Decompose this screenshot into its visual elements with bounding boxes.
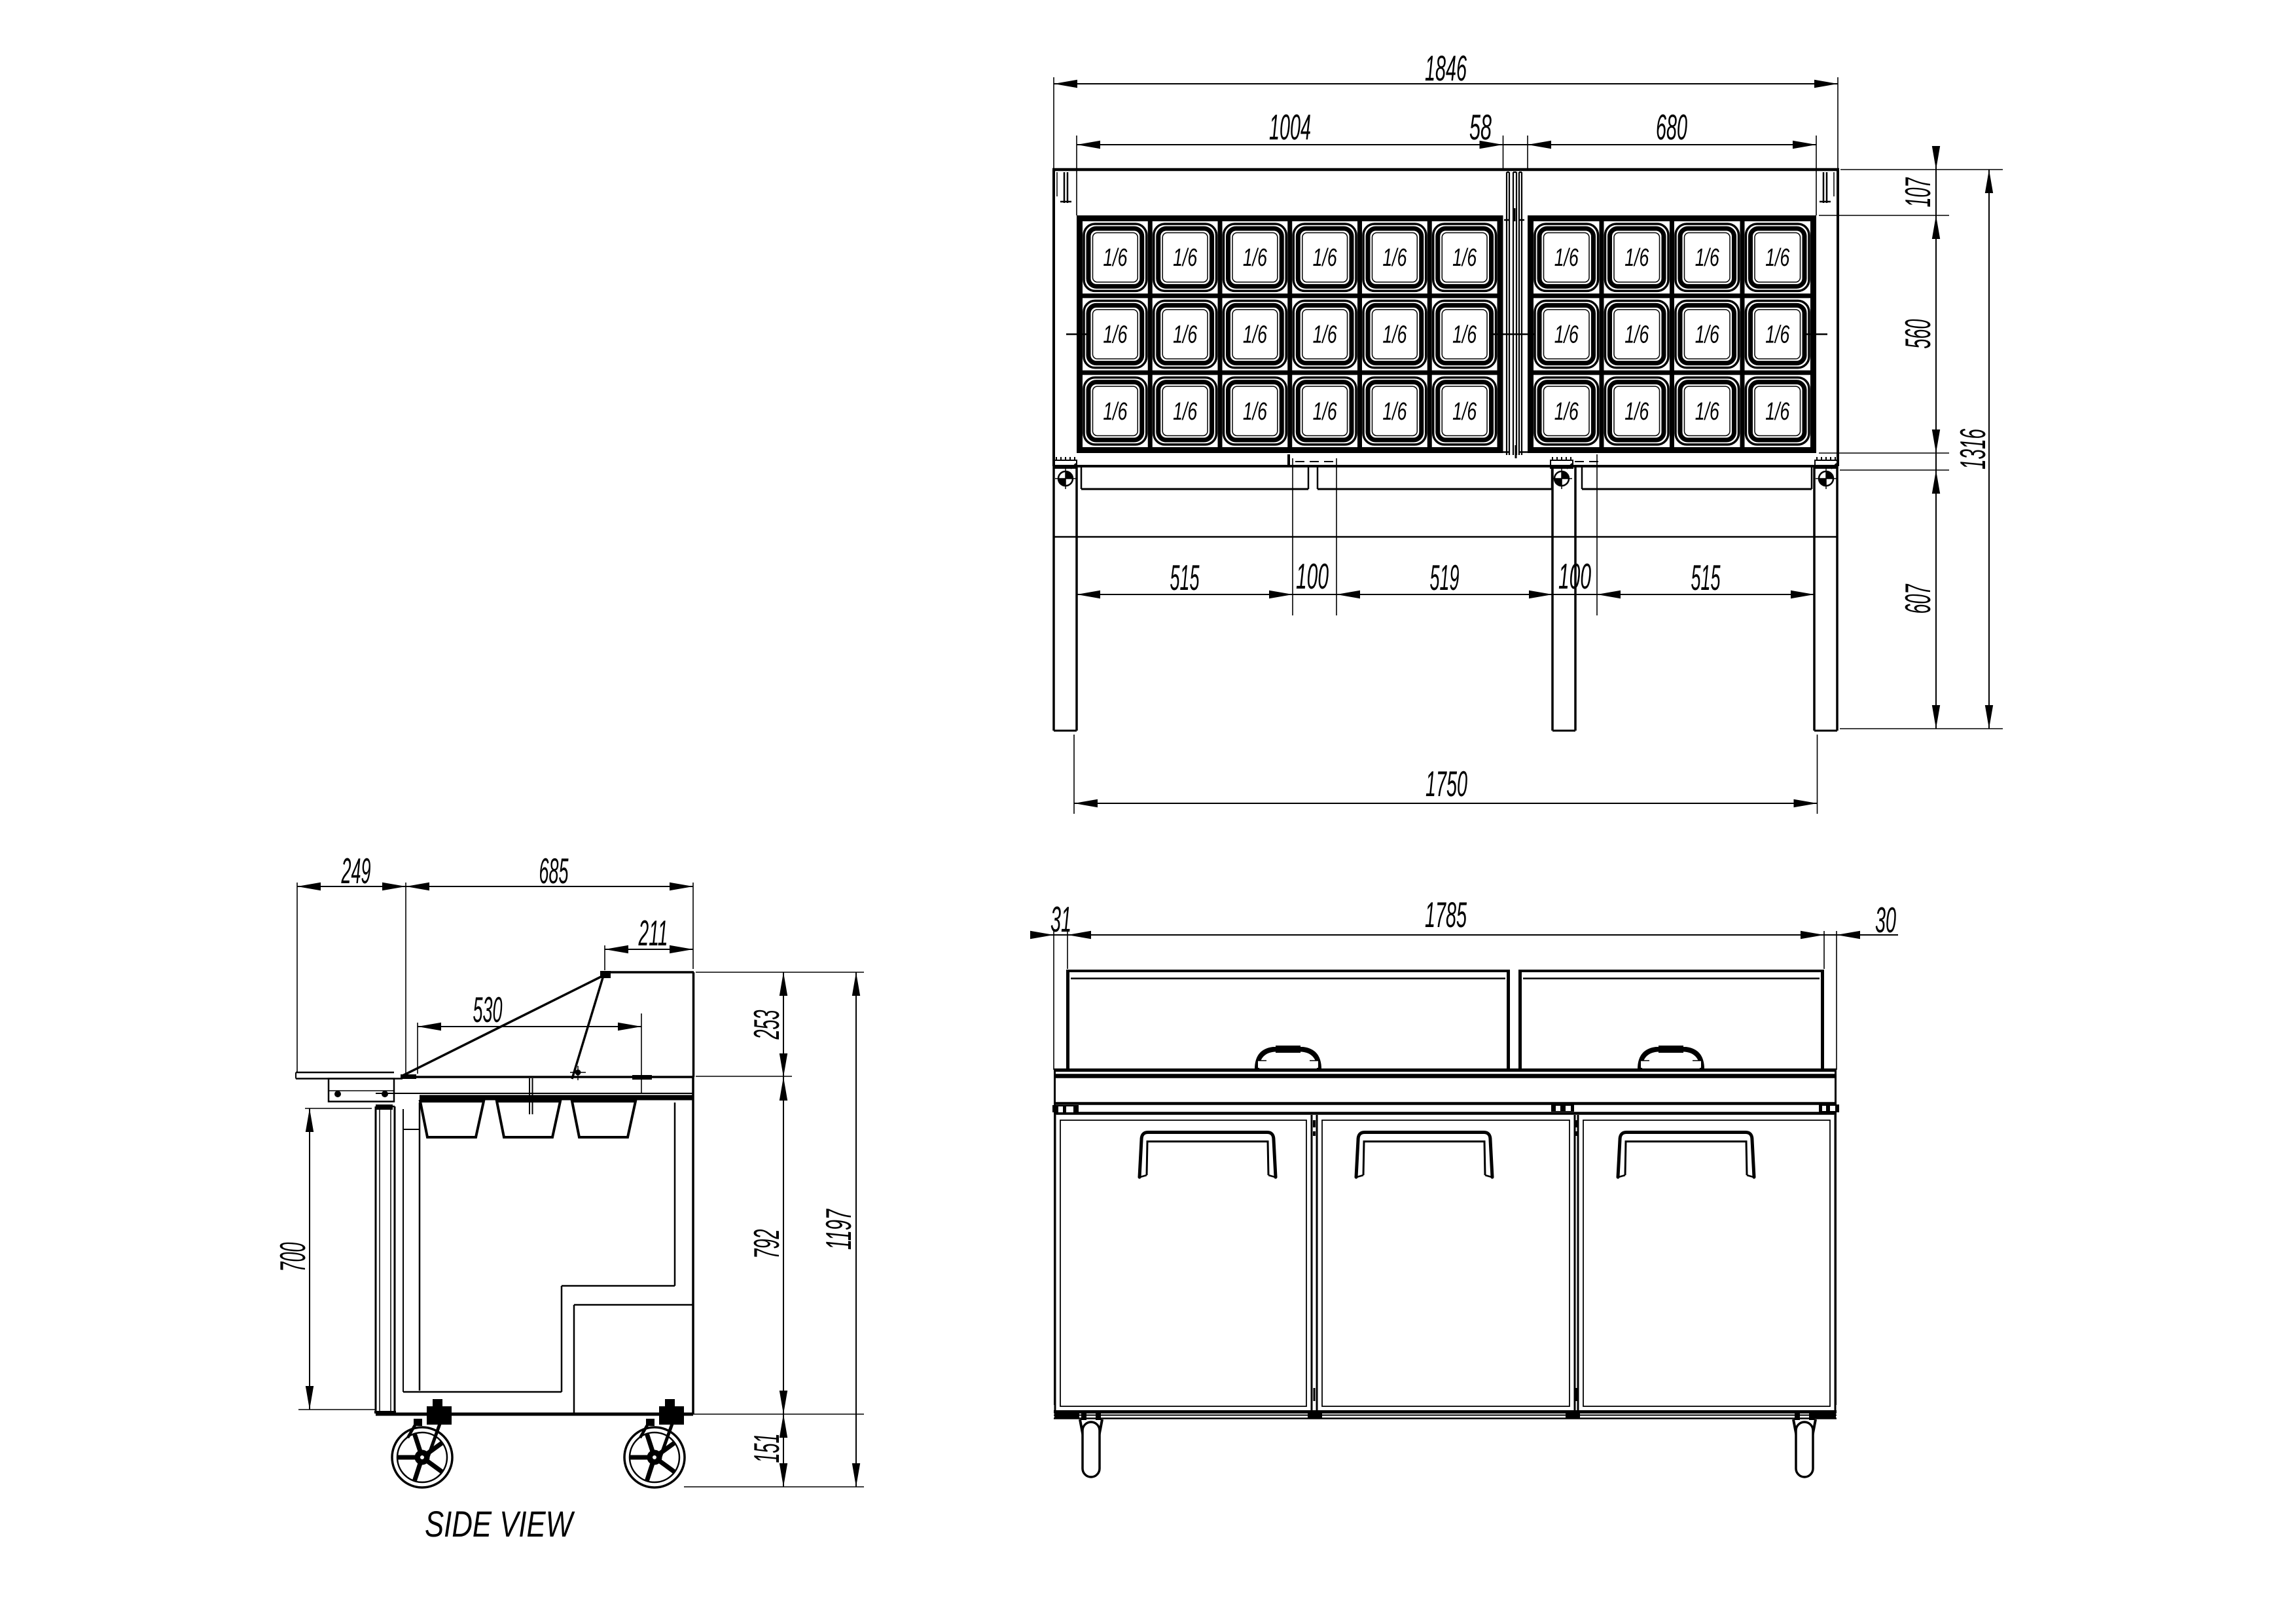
svg-text:1/6: 1/6 xyxy=(1243,321,1268,349)
svg-text:1/6: 1/6 xyxy=(1313,321,1338,349)
svg-text:1/6: 1/6 xyxy=(1554,398,1579,426)
svg-text:1/6: 1/6 xyxy=(1452,244,1477,272)
svg-text:1/6: 1/6 xyxy=(1624,398,1649,426)
svg-text:607: 607 xyxy=(1897,583,1938,613)
svg-text:1/6: 1/6 xyxy=(1243,398,1268,426)
svg-text:1/6: 1/6 xyxy=(1103,244,1128,272)
svg-text:107: 107 xyxy=(1897,177,1938,207)
svg-text:1/6: 1/6 xyxy=(1695,321,1720,349)
svg-text:100: 100 xyxy=(1296,556,1329,596)
svg-text:700: 700 xyxy=(272,1242,313,1271)
svg-text:1785: 1785 xyxy=(1425,894,1467,935)
svg-text:100: 100 xyxy=(1558,556,1591,596)
svg-text:1750: 1750 xyxy=(1426,763,1467,804)
svg-text:1/6: 1/6 xyxy=(1313,244,1338,272)
svg-text:1/6: 1/6 xyxy=(1765,244,1790,272)
svg-text:1/6: 1/6 xyxy=(1624,244,1649,272)
svg-text:1/6: 1/6 xyxy=(1173,321,1198,349)
svg-text:1/6: 1/6 xyxy=(1382,244,1407,272)
svg-text:515: 515 xyxy=(1170,557,1200,598)
svg-text:792: 792 xyxy=(746,1230,787,1259)
svg-text:1197: 1197 xyxy=(818,1209,859,1250)
svg-text:31: 31 xyxy=(1050,899,1071,939)
svg-text:1/6: 1/6 xyxy=(1173,398,1198,426)
svg-text:1/6: 1/6 xyxy=(1554,244,1579,272)
svg-text:1/6: 1/6 xyxy=(1382,321,1407,349)
svg-text:SIDE VIEW: SIDE VIEW xyxy=(425,1503,575,1544)
svg-text:515: 515 xyxy=(1691,557,1721,598)
svg-text:1/6: 1/6 xyxy=(1765,398,1790,426)
svg-text:151: 151 xyxy=(746,1434,787,1463)
svg-text:1316: 1316 xyxy=(1952,429,1993,469)
svg-text:1/6: 1/6 xyxy=(1695,398,1720,426)
svg-text:1/6: 1/6 xyxy=(1624,321,1649,349)
svg-text:685: 685 xyxy=(539,850,569,891)
svg-text:1004: 1004 xyxy=(1269,107,1311,147)
svg-text:30: 30 xyxy=(1875,900,1896,940)
svg-text:519: 519 xyxy=(1430,557,1460,598)
svg-text:530: 530 xyxy=(473,989,503,1030)
svg-text:211: 211 xyxy=(638,913,668,953)
svg-text:1/6: 1/6 xyxy=(1765,321,1790,349)
svg-text:1/6: 1/6 xyxy=(1313,398,1338,426)
svg-text:1/6: 1/6 xyxy=(1554,321,1579,349)
svg-text:1/6: 1/6 xyxy=(1103,398,1128,426)
svg-text:249: 249 xyxy=(341,850,370,891)
svg-text:560: 560 xyxy=(1897,319,1938,348)
svg-text:253: 253 xyxy=(746,1010,787,1040)
svg-text:1/6: 1/6 xyxy=(1243,244,1268,272)
svg-text:1/6: 1/6 xyxy=(1452,398,1477,426)
svg-text:1/6: 1/6 xyxy=(1173,244,1198,272)
svg-text:680: 680 xyxy=(1656,107,1687,147)
svg-text:1846: 1846 xyxy=(1425,48,1467,88)
svg-text:1/6: 1/6 xyxy=(1452,321,1477,349)
svg-text:58: 58 xyxy=(1469,107,1492,147)
svg-text:1/6: 1/6 xyxy=(1382,398,1407,426)
svg-text:1/6: 1/6 xyxy=(1103,321,1128,349)
svg-text:1/6: 1/6 xyxy=(1695,244,1720,272)
